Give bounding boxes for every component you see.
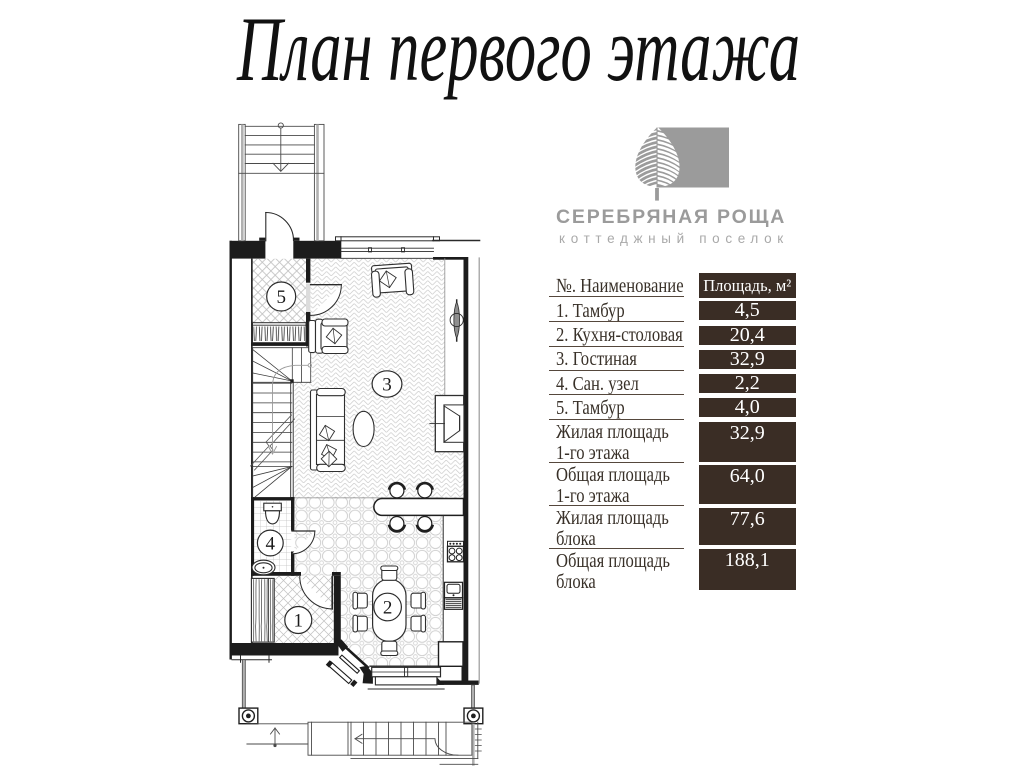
svg-text:1: 1 [294, 611, 304, 632]
svg-text:4: 4 [266, 534, 276, 555]
svg-text:5: 5 [276, 287, 286, 308]
svg-text:3: 3 [382, 375, 392, 396]
svg-text:2: 2 [383, 598, 393, 619]
